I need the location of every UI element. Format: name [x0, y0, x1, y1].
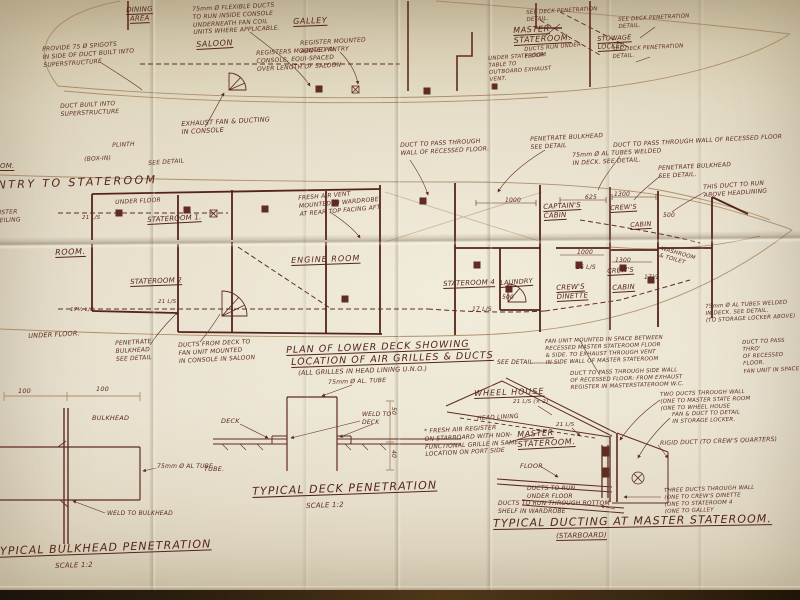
subtitle-starboard: (STARBOARD)	[556, 531, 607, 541]
room-stateroom-2: STATEROOM 2	[130, 276, 182, 287]
dim-17ls: 17 L/S	[472, 306, 492, 314]
note-ducts-shelf: DUCTS TO RUN THROUGH BOTTOM SHELF IN WAR…	[498, 500, 610, 516]
dim-100-left: 100	[18, 387, 31, 395]
room-captains-cabin: CAPTAIN'S CABIN	[543, 201, 582, 221]
table-surface	[0, 590, 800, 600]
room-crews-cabin-stbd-2: CABIN	[630, 220, 652, 230]
dim-1300-a: 1300	[614, 191, 630, 199]
upper-registers	[316, 84, 497, 94]
label-tube: TUBE.	[204, 465, 224, 473]
rate-17half-ls: 17½ L/S	[70, 307, 94, 314]
note-wc-duct: DUCT TO PASS THROUGH SIDE WALL OF RECESS…	[570, 367, 684, 392]
saloon-fan-symbol	[229, 73, 246, 90]
room-stateroom-4: STATEROOM 4	[443, 278, 495, 289]
dim-26ls: 26 L/S	[576, 264, 596, 272]
label-master-stateroom: MASTER STATEROOM.	[517, 427, 576, 451]
note-plinth: PLINTH	[112, 141, 135, 150]
rate-21ls-b: 21 L/S	[158, 299, 176, 306]
bulkhead-detail-drawing	[0, 408, 156, 544]
label-deck: DECK	[221, 417, 240, 425]
note-fan-unit: FAN UNIT MOUNTED IN SPACE BETWEEN RECESS…	[545, 335, 664, 368]
note-under-table: UNDER STATEROOM TABLE TO OUTBOARD EXHAUS…	[488, 52, 552, 85]
note-fan-duct-locker: FAN & DUCT TO DETAIL IN STORAGE LOCKER.	[672, 410, 741, 427]
dim-500-a: 500	[663, 212, 675, 220]
dim-500-b: 500	[502, 294, 514, 302]
room-galley: GALLEY	[293, 16, 327, 28]
room-dining-area: DINING AREA	[126, 5, 153, 24]
note-registers-console: REGISTERS MOUNTED IN CONSOLE, EQUI-SPACE…	[256, 46, 341, 74]
scale-deck-detail: SCALE 1:2	[306, 501, 344, 511]
label-weld-deck: WELD TO DECK	[362, 411, 391, 427]
label-bulkhead: BULKHEAD	[92, 414, 129, 422]
dim-100-right: 100	[96, 385, 109, 393]
rate-21ls-a: 21 L/S	[82, 215, 100, 222]
note-fresh-air-register: * FRESH AIR REGISTER ON STARBOARD WITH N…	[424, 423, 519, 459]
drawing-sheet-photo: 75mm Ø FLEXIBLE DUCTS TO RUN INSIDE CONS…	[0, 0, 800, 600]
dim-17half: 17½	[644, 274, 658, 282]
room-crews-cabin-stbd: CREW'S	[610, 203, 637, 213]
note-box-in: (BOX-IN)	[84, 155, 111, 164]
note-flexible-ducts: 75mm Ø FLEXIBLE DUCTS TO RUN INSIDE CONS…	[192, 1, 280, 37]
note-register-ceiling: REGISTER IN CEILING	[0, 208, 21, 225]
scale-bulkhead-detail: SCALE 1:2	[55, 561, 93, 571]
room-partial-room: ROOM.	[55, 247, 86, 258]
dim-625: 625	[585, 194, 597, 202]
note-duct-built-into: DUCT BUILT INTO SUPERSTRUCTURE	[60, 100, 120, 119]
room-crews-cabin-port-2: CABIN	[612, 283, 635, 293]
room-crews-cabin-port: CREW'S	[607, 266, 634, 276]
dim-1300-b: 1300	[615, 257, 631, 265]
rate-21ls-x2: 21 L/S (× 2)	[513, 399, 548, 406]
dim-40: 40	[389, 450, 397, 458]
lower-deck-walls	[92, 183, 748, 335]
note-corner-duct: DUCT TO PASS THRO' OF RECESSED FLOOR. FA…	[742, 337, 800, 376]
dim-1000-b: 1000	[577, 249, 593, 257]
note-ducts-console: DUCTS FROM DECK TO FAN UNIT MOUNTED IN C…	[178, 338, 255, 365]
dim-50: 50	[389, 407, 397, 415]
room-saloon: SALOON	[196, 38, 233, 50]
note-penetrate-bulkhead-3: PENETRATE BULKHEAD SEE DETAIL	[115, 338, 153, 363]
room-crews-dinette: CREW'S DINETTE	[556, 282, 588, 302]
room-partial-om: OM.	[0, 162, 14, 171]
dim-1000-a: 1000	[505, 197, 521, 205]
note-see-detail-master: SEE DETAIL	[497, 359, 533, 367]
label-floor: FLOOR	[520, 462, 543, 470]
note-ducts-under-floor: DUCTS TO RUN UNDER FLOOR	[527, 485, 575, 501]
label-weld-bulkhead: WELD TO BULKHEAD	[107, 510, 173, 518]
lower-deck-ducts	[58, 213, 700, 312]
